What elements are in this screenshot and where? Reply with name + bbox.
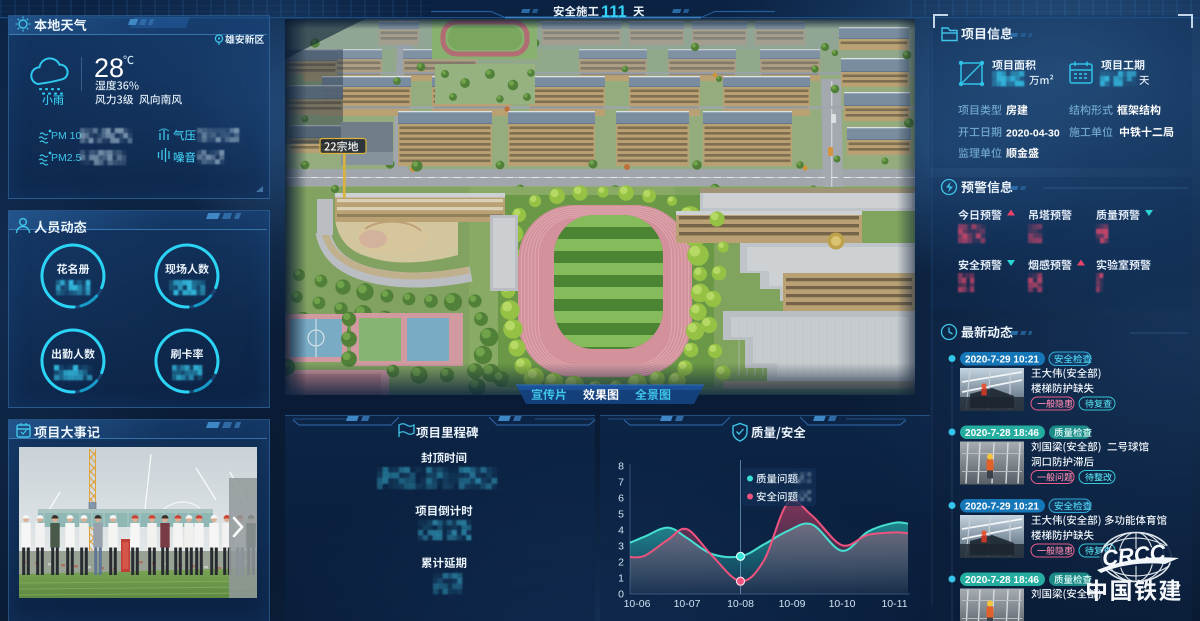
svg-text:PM2.5: PM2.5 bbox=[51, 152, 82, 164]
svg-text:4: 4 bbox=[618, 525, 624, 537]
svg-text:7: 7 bbox=[618, 477, 624, 489]
svg-text:2020-7-29 10:21: 2020-7-29 10:21 bbox=[965, 502, 1039, 513]
svg-text:2020-7-28 18:46: 2020-7-28 18:46 bbox=[965, 428, 1039, 439]
svg-text:8: 8 bbox=[618, 461, 624, 473]
svg-text:2020-04-30: 2020-04-30 bbox=[1006, 128, 1060, 140]
svg-text:10-09: 10-09 bbox=[779, 598, 806, 610]
svg-text:10-10: 10-10 bbox=[829, 598, 856, 610]
svg-text:111: 111 bbox=[601, 3, 627, 21]
svg-text:5: 5 bbox=[618, 509, 624, 521]
svg-text:2: 2 bbox=[618, 557, 624, 569]
svg-text:2020-7-28 18:46: 2020-7-28 18:46 bbox=[965, 575, 1039, 586]
svg-text:28: 28 bbox=[94, 53, 124, 83]
svg-text:10-06: 10-06 bbox=[624, 598, 651, 610]
svg-text:10-07: 10-07 bbox=[674, 598, 701, 610]
svg-text:6: 6 bbox=[618, 493, 624, 505]
svg-text:10-11: 10-11 bbox=[881, 598, 907, 610]
svg-text:1: 1 bbox=[618, 573, 624, 585]
svg-text:3: 3 bbox=[618, 541, 624, 553]
svg-text:CRCC: CRCC bbox=[1101, 539, 1168, 571]
svg-text:10-08: 10-08 bbox=[727, 598, 754, 610]
svg-text:PM 10: PM 10 bbox=[51, 130, 82, 142]
svg-text:2020-7-29 10:21: 2020-7-29 10:21 bbox=[965, 355, 1039, 366]
